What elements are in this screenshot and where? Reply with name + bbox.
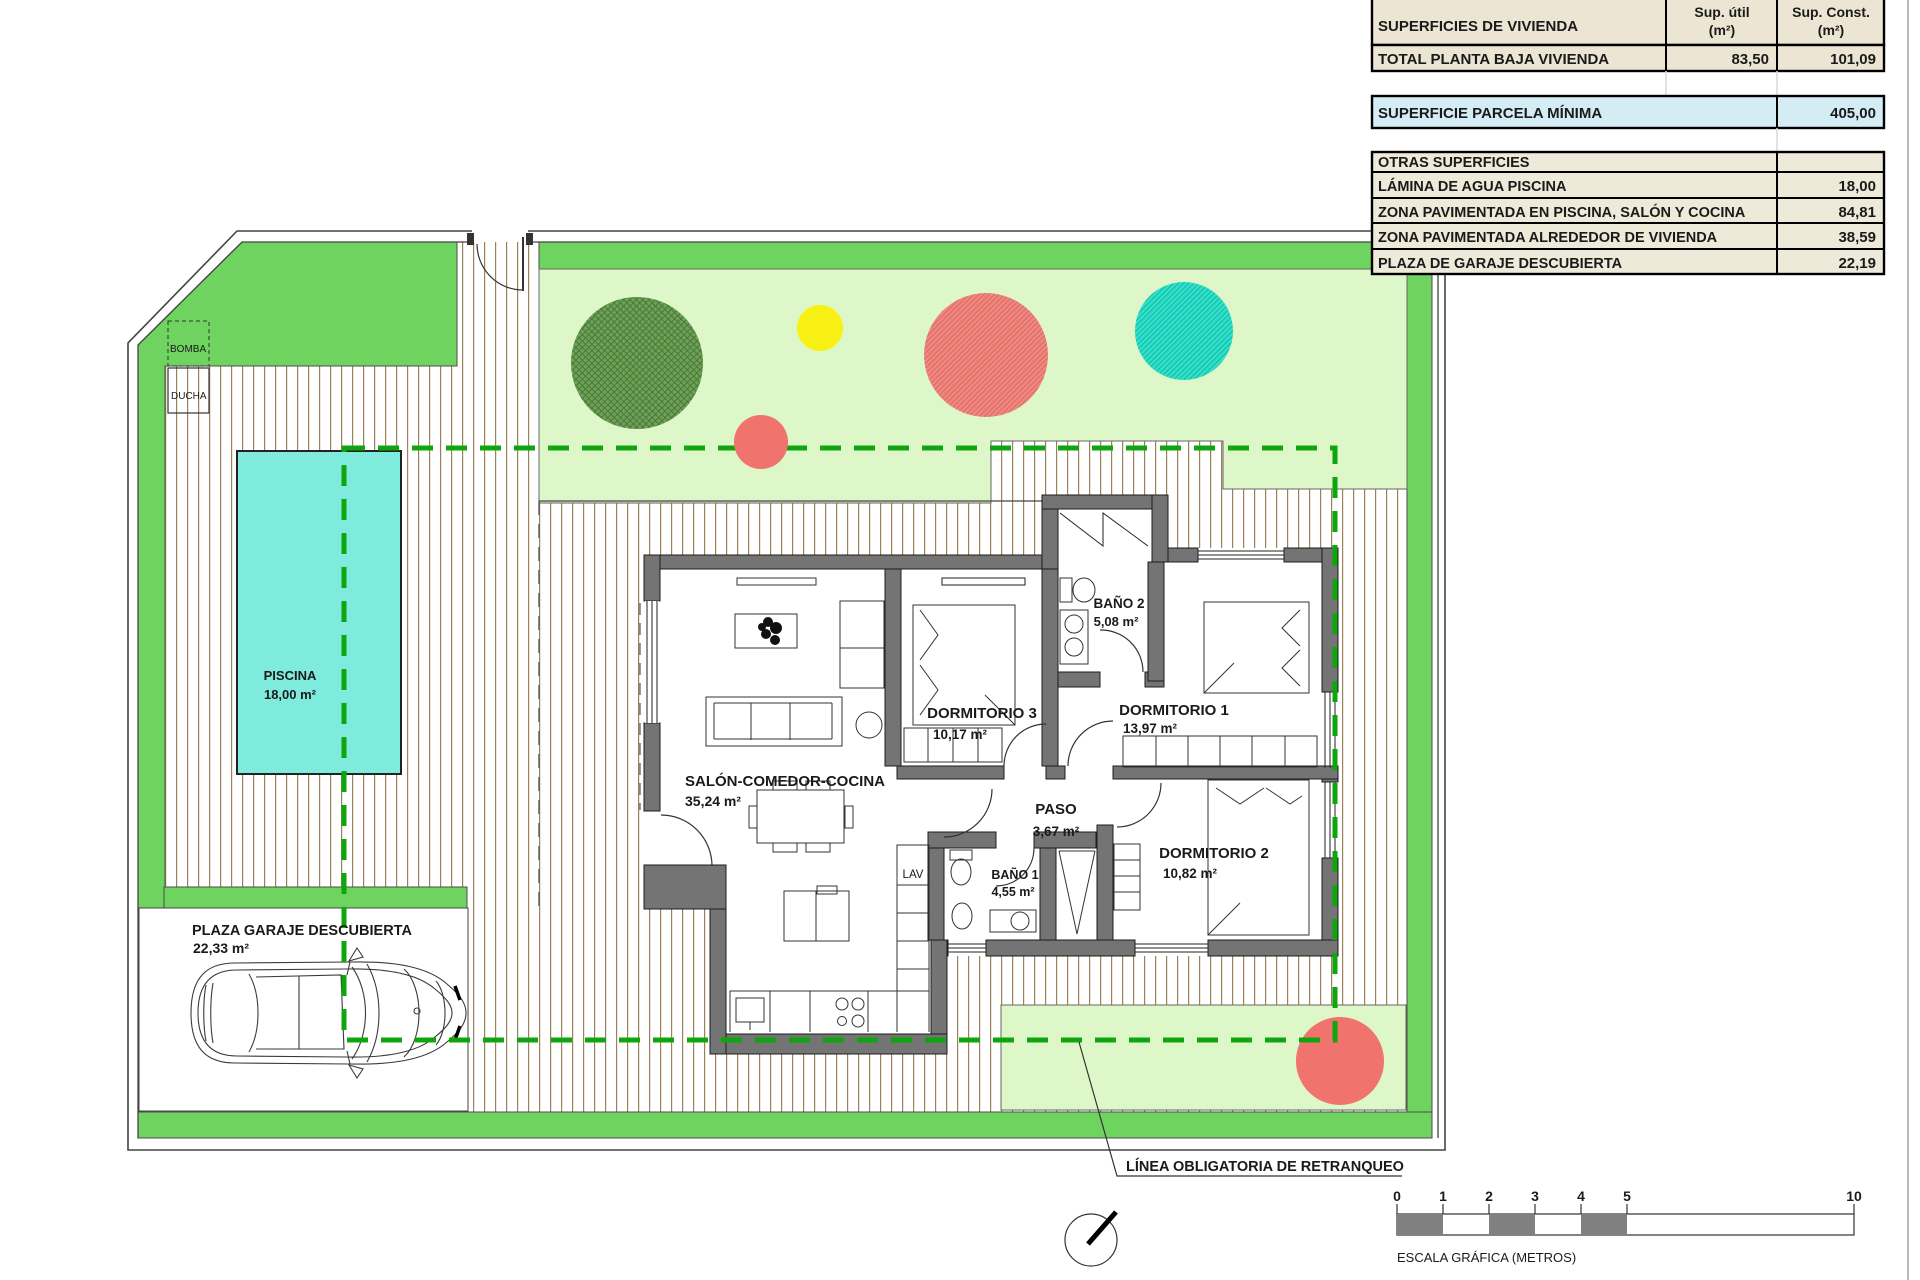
svg-text:LÍNEA OBLIGATORIA DE RETRANQUE: LÍNEA OBLIGATORIA DE RETRANQUEO <box>1126 1158 1404 1175</box>
svg-text:38,59: 38,59 <box>1838 229 1876 246</box>
svg-text:ESCALA GRÁFICA (METROS): ESCALA GRÁFICA (METROS) <box>1397 1250 1576 1265</box>
svg-text:10,82 m²: 10,82 m² <box>1163 866 1218 881</box>
svg-text:BOMBA: BOMBA <box>170 344 206 355</box>
svg-text:ZONA PAVIMENTADA ALREDEDOR DE: ZONA PAVIMENTADA ALREDEDOR DE VIVIENDA <box>1378 230 1718 246</box>
svg-text:4: 4 <box>1577 1188 1585 1204</box>
svg-text:22,33 m²: 22,33 m² <box>193 940 249 956</box>
svg-text:2: 2 <box>1485 1188 1493 1204</box>
svg-text:DUCHA: DUCHA <box>171 391 207 402</box>
svg-text:LÁMINA DE AGUA PISCINA: LÁMINA DE AGUA PISCINA <box>1378 178 1567 195</box>
svg-text:DORMITORIO 1: DORMITORIO 1 <box>1119 702 1229 719</box>
svg-text:3: 3 <box>1531 1188 1539 1204</box>
svg-text:(m²): (m²) <box>1709 22 1735 38</box>
svg-text:18,00 m²: 18,00 m² <box>264 687 317 702</box>
svg-text:TOTAL PLANTA BAJA VIVIENDA: TOTAL PLANTA BAJA VIVIENDA <box>1378 51 1609 68</box>
svg-text:LAV: LAV <box>903 869 924 881</box>
svg-text:101,09: 101,09 <box>1830 51 1876 68</box>
svg-text:PASO: PASO <box>1035 801 1077 818</box>
svg-text:35,24 m²: 35,24 m² <box>685 793 741 809</box>
svg-text:PLAZA GARAJE DESCUBIERTA: PLAZA GARAJE DESCUBIERTA <box>192 923 412 939</box>
svg-text:SALÓN-COMEDOR-COCINA: SALÓN-COMEDOR-COCINA <box>685 772 885 790</box>
svg-text:SUPERFICIES DE VIVIENDA: SUPERFICIES DE VIVIENDA <box>1378 18 1578 35</box>
svg-text:(m²): (m²) <box>1818 22 1844 38</box>
svg-text:Sup. Const.: Sup. Const. <box>1792 4 1870 20</box>
svg-text:BAÑO 2: BAÑO 2 <box>1093 596 1144 611</box>
svg-text:18,00: 18,00 <box>1838 178 1876 195</box>
svg-text:13,97 m²: 13,97 m² <box>1123 721 1178 736</box>
svg-text:10,17 m²: 10,17 m² <box>933 727 988 742</box>
svg-text:4,55 m²: 4,55 m² <box>991 885 1034 899</box>
svg-text:5: 5 <box>1623 1188 1631 1204</box>
svg-text:Sup. útil: Sup. útil <box>1694 4 1749 20</box>
svg-text:10: 10 <box>1846 1188 1862 1204</box>
svg-text:84,81: 84,81 <box>1838 204 1876 221</box>
svg-text:3,67 m²: 3,67 m² <box>1033 824 1080 839</box>
svg-text:ZONA PAVIMENTADA EN PISCINA, S: ZONA PAVIMENTADA EN PISCINA, SALÓN Y COC… <box>1378 203 1746 221</box>
svg-text:1: 1 <box>1439 1188 1447 1204</box>
svg-text:DORMITORIO 3: DORMITORIO 3 <box>927 705 1037 722</box>
svg-text:405,00: 405,00 <box>1830 105 1876 122</box>
svg-text:PISCINA: PISCINA <box>264 668 317 683</box>
svg-text:22,19: 22,19 <box>1838 255 1876 272</box>
svg-text:BAÑO 1: BAÑO 1 <box>991 867 1038 882</box>
svg-text:0: 0 <box>1393 1188 1401 1204</box>
svg-text:SUPERFICIE PARCELA MÍNIMA: SUPERFICIE PARCELA MÍNIMA <box>1378 105 1602 122</box>
svg-text:DORMITORIO 2: DORMITORIO 2 <box>1159 845 1269 862</box>
svg-text:5,08 m²: 5,08 m² <box>1094 614 1139 629</box>
svg-text:PLAZA DE GARAJE DESCUBIERTA: PLAZA DE GARAJE DESCUBIERTA <box>1378 256 1623 272</box>
svg-text:OTRAS SUPERFICIES: OTRAS SUPERFICIES <box>1378 155 1530 171</box>
svg-text:83,50: 83,50 <box>1731 51 1769 68</box>
